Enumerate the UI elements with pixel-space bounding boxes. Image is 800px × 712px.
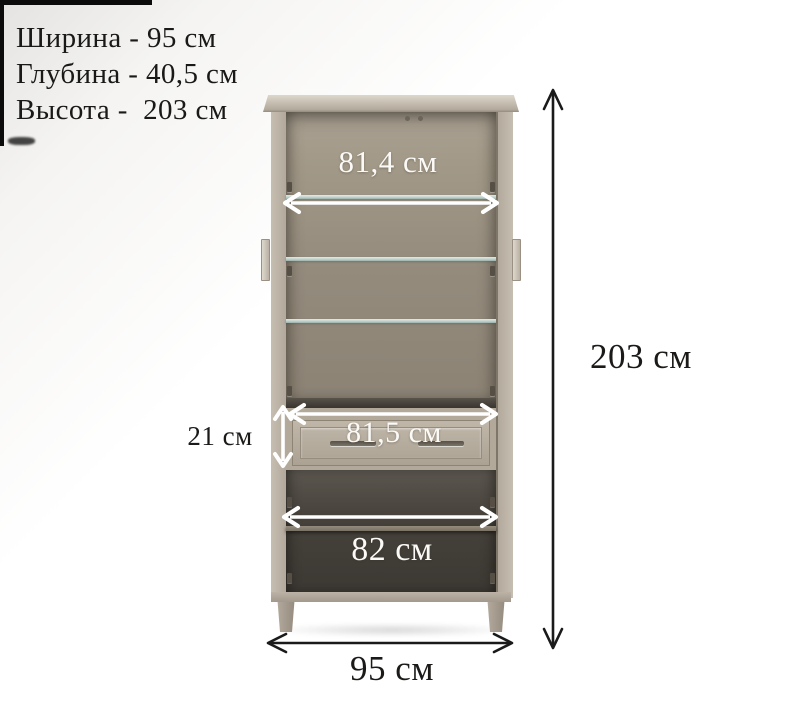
photo-edge-artifact-top [0,0,152,5]
lower-inner-width-arrow [278,504,502,530]
drawer-height-label: 21 см [187,421,252,452]
spec-width-line: Ширина - 95 см [16,20,238,56]
product-specs: Ширина - 95 см Глубина - 40,5 см Высота … [16,20,238,128]
upper-inner-width-label: 81,4 см [339,144,438,180]
ceiling-fitting-dot [418,116,423,121]
furniture-dimension-diagram: Ширина - 95 см Глубина - 40,5 см Высота … [0,0,800,712]
overall-width-arrow [262,629,518,657]
drawer-height-arrow [270,403,296,470]
lower-inner-width-label: 82 см [351,531,433,569]
door-handle-left [261,239,270,281]
hinge [490,266,495,276]
drawer-width-label: 81,5 см [346,416,442,450]
spec-depth-line: Глубина - 40,5 см [16,56,238,92]
hinge [287,266,292,276]
bottom-rail [271,592,511,602]
upper-inner-width-arrow [279,190,503,216]
hinge [287,386,292,396]
hinge [287,573,292,583]
hinge [490,573,495,583]
spec-height-line: Высота - 203 см [16,92,238,128]
hinge [490,386,495,396]
glass-shelf [286,319,496,323]
door-handle-right [512,239,521,281]
crown-molding [263,95,519,112]
overall-height-label: 203 см [590,337,692,377]
glass-shelf [286,257,496,261]
photo-edge-artifact-smudge [8,137,35,145]
overall-height-arrow [540,85,566,653]
photo-edge-artifact-left [0,0,4,146]
ceiling-fitting-dot [405,116,410,121]
